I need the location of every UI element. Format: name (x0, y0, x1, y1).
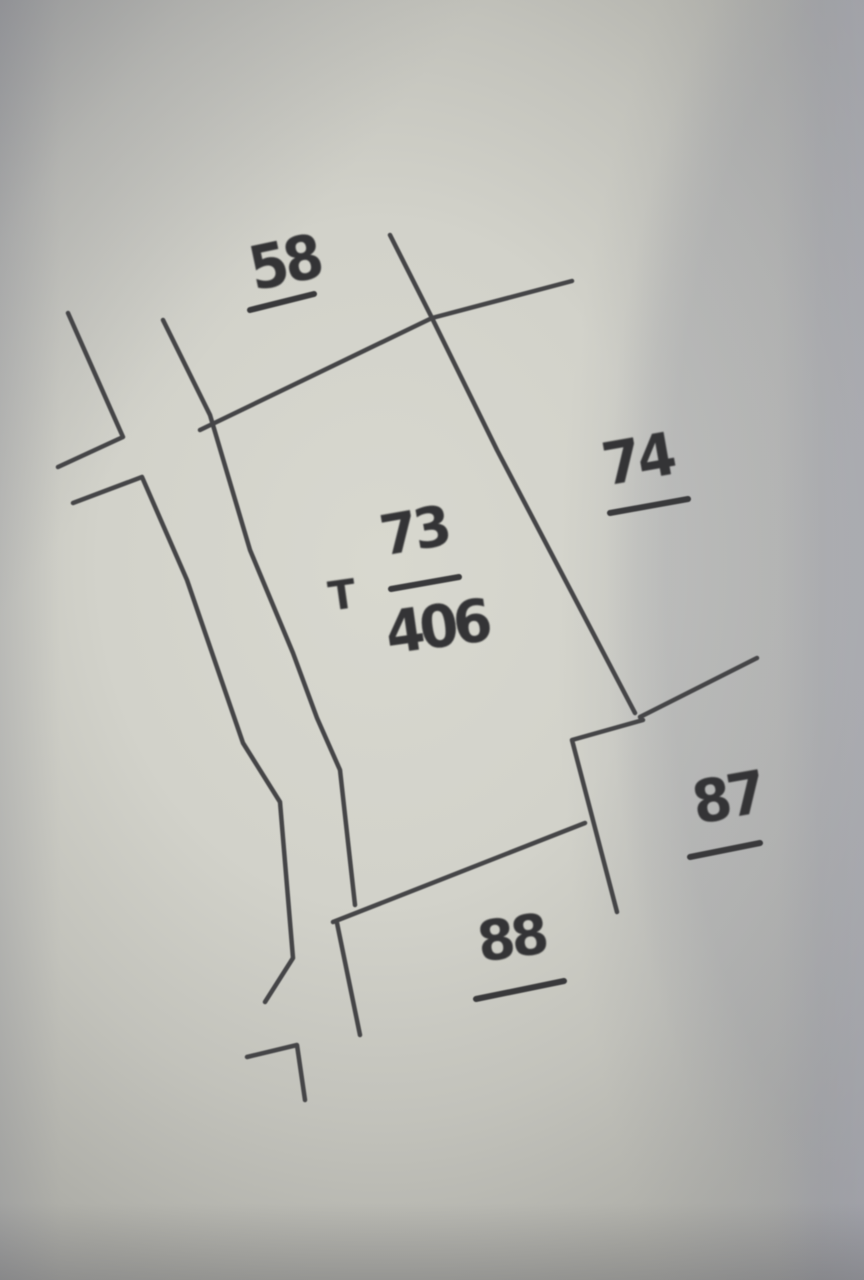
parcel-label-87: 87 (688, 764, 767, 834)
parcel-label-88: 88 (474, 907, 548, 971)
bottom-corner-mark (247, 1045, 305, 1100)
road-left-upper-segment (58, 313, 123, 467)
parcel-87-north-edge (640, 658, 757, 717)
road-right-lower-segment (337, 923, 360, 1035)
fraction-bar-73-406 (391, 577, 459, 589)
underline-74 (610, 499, 688, 513)
parcel-number-denominator: 406 (382, 592, 491, 664)
north-boundary-line (200, 281, 572, 430)
road-left-main-segment (73, 477, 293, 1002)
house-mark-label: T (326, 574, 359, 617)
road-right-line (163, 320, 355, 905)
south-boundary-line (333, 823, 585, 922)
parcel-number-numerator: 73 (376, 498, 452, 564)
parcel-label-74: 74 (598, 426, 677, 496)
parcel-87-west-edge (572, 720, 643, 912)
parcel-label-58: 58 (244, 227, 325, 301)
underline-87 (690, 843, 760, 857)
underline-88 (476, 981, 564, 999)
paper-background: 58 74 T 73 406 87 88 (0, 0, 864, 1280)
